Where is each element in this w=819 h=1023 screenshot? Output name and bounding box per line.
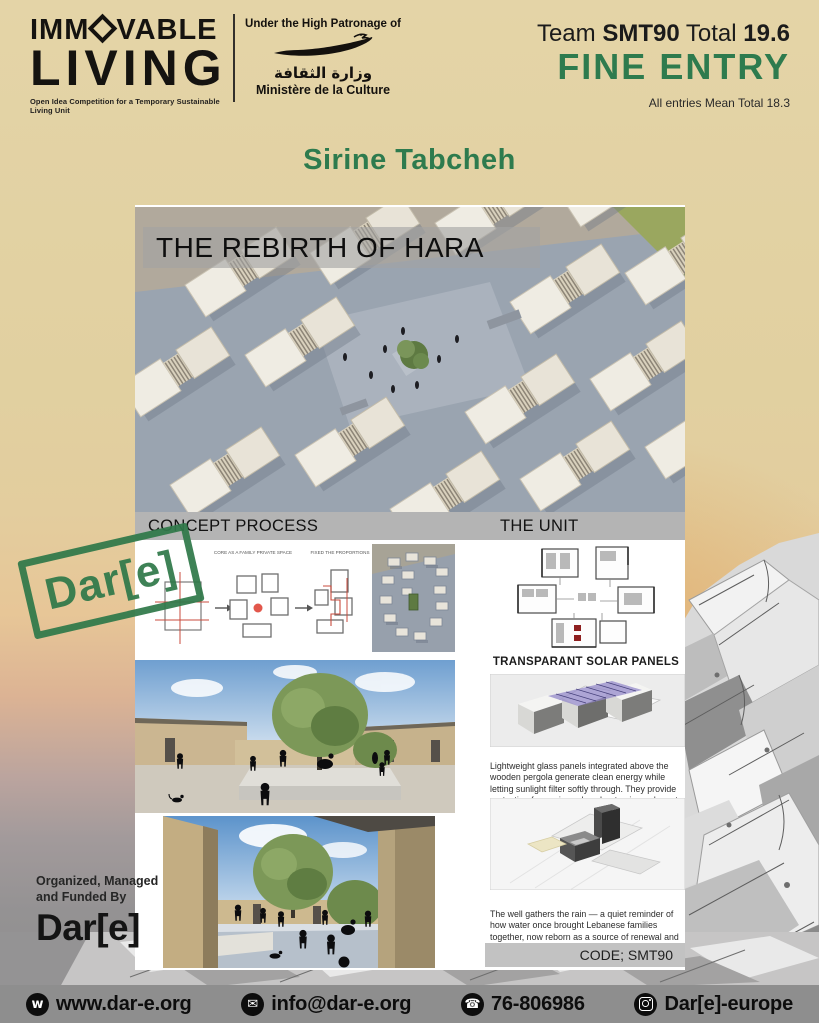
score-block: Team SMT90 Total 19.6 FINE ENTRY All ent…: [537, 20, 790, 110]
unit-floor-plan: [490, 543, 685, 653]
competition-tagline: Open Idea Competition for a Temporary Su…: [30, 97, 230, 115]
website-item: w www.dar-e.org: [26, 993, 192, 1016]
contact-footer-bar: w www.dar-e.org ✉ info@dar-e.org ☎ 76-80…: [0, 985, 819, 1023]
team-label: Team: [537, 20, 602, 47]
hero-title: THE REBIRTH OF HARA: [143, 232, 484, 264]
hero-aerial-render: THE REBIRTH OF HARA: [135, 207, 685, 512]
email-label: info@dar-e.org: [271, 993, 411, 1016]
organizer-line2: and Funded By: [36, 890, 158, 906]
instagram-glyph: [639, 997, 653, 1011]
immovable-living-logo: IMMVABLE LIVING Open Idea Competition fo…: [30, 16, 230, 115]
team-total-line: Team SMT90 Total 19.6: [537, 20, 790, 48]
masterplan-thumbnail: [372, 544, 455, 652]
the-unit-title: THE UNIT: [500, 517, 578, 536]
website-label: www.dar-e.org: [56, 993, 192, 1016]
email-icon: ✉: [241, 993, 264, 1016]
dare-logo: Dar[e]: [36, 907, 158, 949]
concept-step3-label: FIXED THE PROPORTIONS: [310, 550, 369, 555]
ministry-calligraphy-icon: [268, 33, 378, 59]
header-divider: [233, 14, 235, 102]
stamp-text: Dar[e]: [41, 542, 182, 621]
instagram-icon: [634, 993, 657, 1016]
solar-panels-heading: TRANSPARANT SOLAR PANELS: [487, 656, 685, 668]
competition-board: THE REBIRTH OF HARA CONCEPT PROCESS THE …: [135, 205, 685, 970]
mean-total-note: All entries Mean Total 18.3: [537, 96, 790, 110]
rain-well-render: [490, 798, 685, 890]
phone-glyph: ☎: [464, 998, 480, 1011]
total-value: 19.6: [743, 20, 790, 47]
instagram-label: Dar[e]-europe: [664, 993, 793, 1016]
entry-code: CODE; SMT90: [580, 947, 685, 963]
team-code: SMT90: [602, 20, 679, 47]
entry-code-bar: CODE; SMT90: [485, 943, 685, 967]
total-label: Total: [680, 20, 744, 47]
solar-panels-render: [490, 674, 685, 747]
section-header-bar: CONCEPT PROCESS THE UNIT: [135, 512, 685, 540]
globe-glyph: w: [31, 998, 43, 1011]
destroyed-building-photo: [669, 525, 819, 985]
patronage-line: Under the High Patronage of: [244, 18, 402, 30]
instagram-item: Dar[e]-europe: [634, 993, 793, 1016]
courtyard-image-1: [135, 660, 455, 813]
logo-word-living: LIVING: [30, 45, 230, 91]
competition-result-page: IMMVABLE LIVING Open Idea Competition fo…: [0, 0, 819, 1023]
entry-status-badge: FINE ENTRY: [537, 48, 790, 86]
email-item: ✉ info@dar-e.org: [241, 993, 411, 1016]
entrant-name: Sirine Tabcheh: [0, 144, 819, 177]
courtyard-image-2: [163, 816, 435, 968]
ministry-patronage-block: Under the High Patronage of وزارة الثقاف…: [244, 18, 402, 97]
ministry-name-arabic: وزارة الثقافة: [244, 64, 402, 82]
phone-item: ☎ 76-806986: [461, 993, 585, 1016]
phone-label: 76-806986: [491, 993, 585, 1016]
organizer-block: Organized, Managed and Funded By Dar[e]: [36, 874, 158, 949]
courtyard-render-1: [135, 660, 455, 813]
globe-icon: w: [26, 993, 49, 1016]
hero-title-banner: THE REBIRTH OF HARA: [143, 227, 540, 268]
courtyard-render-2: [163, 816, 435, 968]
phone-icon: ☎: [461, 993, 484, 1016]
email-glyph: ✉: [247, 998, 258, 1011]
organizer-line1: Organized, Managed: [36, 874, 158, 890]
concept-step2-label: CORE AS A FAMILY PRIVATE SPACE: [214, 550, 292, 555]
ministry-name-french: Ministère de la Culture: [244, 83, 402, 97]
diamond-o-icon: [88, 14, 118, 44]
